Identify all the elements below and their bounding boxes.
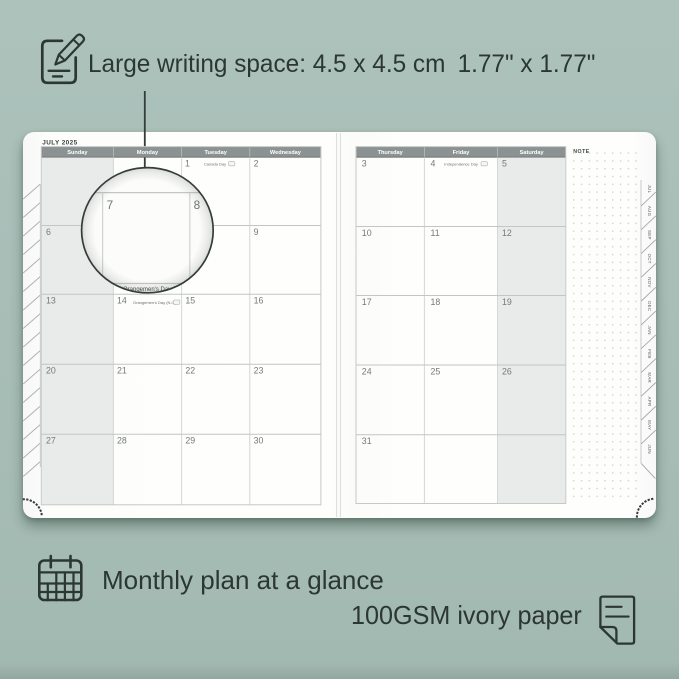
svg-text:NOV: NOV <box>647 277 652 287</box>
svg-text:10: 10 <box>362 228 372 238</box>
svg-text:21: 21 <box>117 366 127 376</box>
svg-text:JUL: JUL <box>647 185 652 194</box>
svg-text:JUN: JUN <box>647 444 652 453</box>
svg-text:18: 18 <box>431 297 441 307</box>
svg-text:31: 31 <box>362 436 372 446</box>
svg-text:Tuesday: Tuesday <box>205 150 228 156</box>
svg-text:JAN: JAN <box>647 325 652 334</box>
svg-text:14: 14 <box>117 296 127 306</box>
svg-text:Friday: Friday <box>453 150 471 156</box>
svg-text:Thursday: Thursday <box>378 150 404 156</box>
svg-text:Orangemen's Day (N.I.): Orangemen's Day (N.I.) <box>133 300 176 305</box>
svg-text:OCT: OCT <box>647 254 652 264</box>
svg-text:4: 4 <box>431 159 436 169</box>
svg-text:MAR: MAR <box>647 372 652 383</box>
svg-text:Canada Day: Canada Day <box>204 161 226 166</box>
svg-text:17: 17 <box>362 297 372 307</box>
svg-text:2: 2 <box>254 159 259 169</box>
svg-text:APR: APR <box>647 397 652 407</box>
svg-text:22: 22 <box>185 366 195 376</box>
svg-text:9: 9 <box>254 227 259 237</box>
svg-text:25: 25 <box>431 366 441 376</box>
svg-text:Monday: Monday <box>137 150 159 156</box>
svg-text:12: 12 <box>502 228 512 238</box>
svg-text:5: 5 <box>502 159 507 169</box>
svg-text:13: 13 <box>46 296 56 306</box>
svg-text:Saturday: Saturday <box>520 150 545 156</box>
svg-text:Sunday: Sunday <box>67 150 88 156</box>
svg-text:16: 16 <box>254 296 264 306</box>
svg-text:27: 27 <box>46 436 56 446</box>
svg-text:28: 28 <box>117 436 127 446</box>
svg-text:24: 24 <box>362 366 372 376</box>
svg-text:AUG: AUG <box>647 206 652 217</box>
svg-text:23: 23 <box>254 366 264 376</box>
svg-text:SEP: SEP <box>647 230 652 240</box>
svg-text:DEC: DEC <box>647 301 652 311</box>
svg-text:26: 26 <box>502 366 512 376</box>
svg-text:30: 30 <box>254 436 264 446</box>
svg-text:Independence Day: Independence Day <box>444 161 478 166</box>
svg-text:19: 19 <box>502 297 512 307</box>
svg-text:JULY 2025: JULY 2025 <box>42 140 77 147</box>
svg-text:1: 1 <box>185 159 190 169</box>
svg-text:3: 3 <box>362 159 367 169</box>
svg-text:MAY: MAY <box>647 420 652 430</box>
svg-text:FEB: FEB <box>647 349 652 358</box>
svg-text:20: 20 <box>46 366 56 376</box>
svg-text:Wednesday: Wednesday <box>270 150 302 156</box>
svg-text:15: 15 <box>185 296 195 306</box>
svg-text:6: 6 <box>46 227 51 237</box>
svg-text:11: 11 <box>431 228 440 238</box>
svg-text:29: 29 <box>185 436 195 446</box>
